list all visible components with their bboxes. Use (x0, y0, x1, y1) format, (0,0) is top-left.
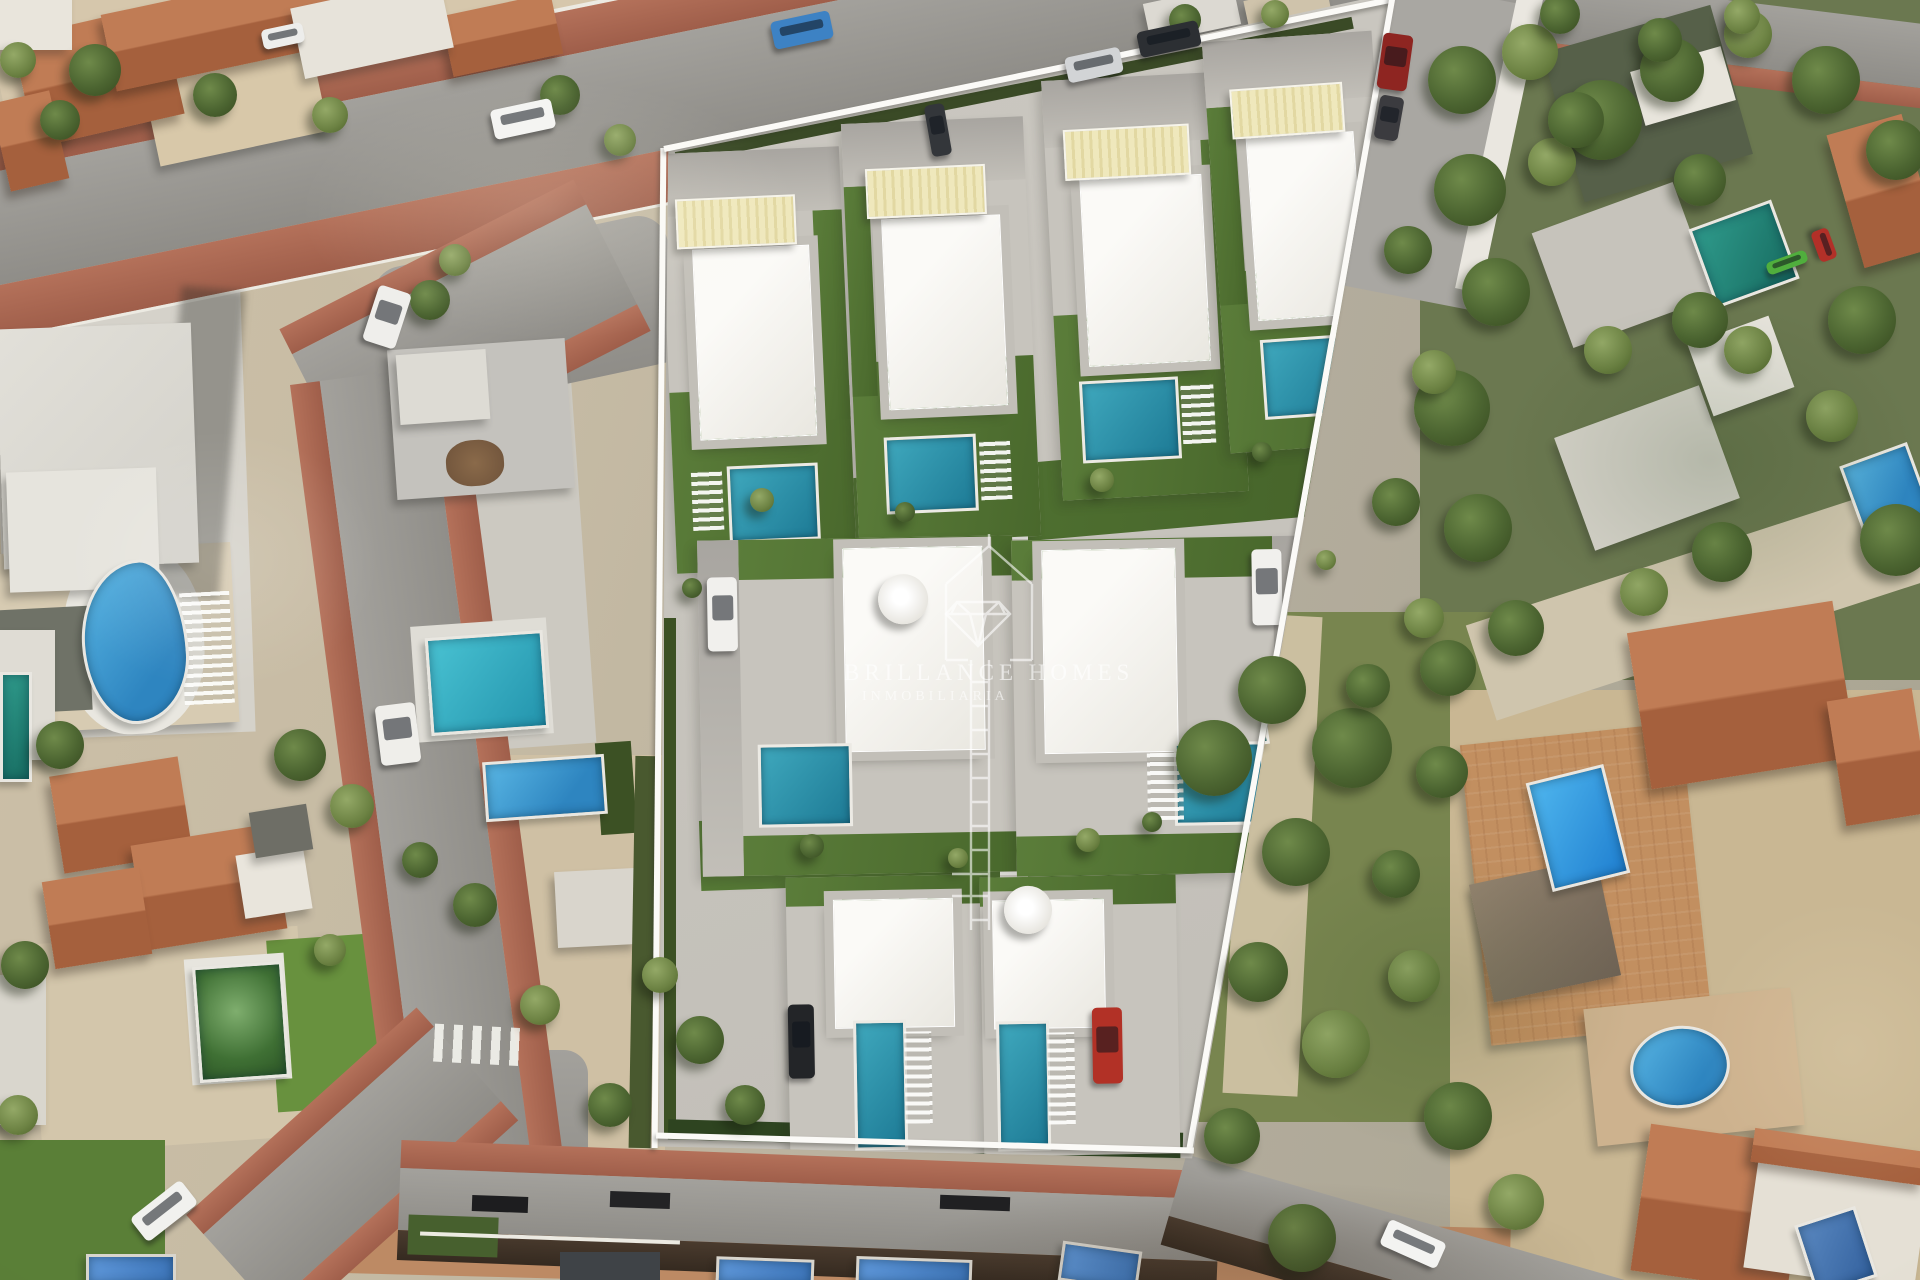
tree (1488, 1174, 1544, 1230)
tree (314, 934, 346, 966)
tree (1434, 154, 1506, 226)
villa-sun-loungers (979, 441, 1012, 501)
villa-pool (1079, 377, 1182, 464)
tree (750, 488, 774, 512)
tree (1261, 0, 1289, 28)
car-windshield (792, 1022, 811, 1047)
house-roof-white-box (396, 349, 491, 425)
shed-white-gravel (554, 868, 638, 948)
tree (1238, 656, 1306, 724)
car-windshield (1073, 54, 1114, 71)
house-roof-terracotta-large (1627, 601, 1857, 790)
tree (0, 42, 36, 78)
tree (1302, 1010, 1370, 1078)
bin-dark (610, 1191, 671, 1209)
tree (1268, 1204, 1336, 1272)
tree (1548, 92, 1604, 148)
tree (1, 941, 49, 989)
tree (642, 957, 678, 993)
car-windshield (779, 18, 823, 36)
tree (1462, 258, 1530, 326)
car-windshield (1384, 46, 1408, 68)
tree (1412, 350, 1456, 394)
car-windshield (712, 595, 734, 621)
villa-house (881, 214, 1008, 410)
tree (1076, 828, 1100, 852)
villa-sun-loungers (1047, 1032, 1076, 1125)
tree (1262, 818, 1330, 886)
tree (520, 985, 560, 1025)
tree (1388, 950, 1440, 1002)
tree (1372, 850, 1420, 898)
villa (980, 874, 1181, 1165)
parasol-icon (1003, 885, 1052, 934)
tree (948, 848, 968, 868)
tree (1228, 942, 1288, 1002)
tree (439, 244, 471, 276)
tree (1620, 568, 1668, 616)
tree (1176, 720, 1252, 796)
tree (1866, 120, 1920, 180)
tree (604, 124, 636, 156)
van-white-branch (374, 702, 421, 766)
car-windshield (267, 28, 298, 41)
tree (402, 842, 438, 878)
villa-pool (757, 743, 853, 828)
crosswalk (433, 1024, 529, 1067)
villa-house (692, 244, 817, 440)
tree (676, 1016, 724, 1064)
tree (1346, 664, 1390, 708)
tree (682, 578, 702, 598)
tree (1316, 550, 1336, 570)
villa-pool (996, 1021, 1051, 1152)
tree (410, 280, 450, 320)
tree (1416, 746, 1468, 798)
villa-pergola (675, 194, 796, 249)
tree (1724, 326, 1772, 374)
house-roof-white (235, 845, 312, 919)
tree (1252, 442, 1272, 462)
tree (1672, 292, 1728, 348)
aerial-photo-canvas: BRILLANCE HOMES INMOBILIARIA (0, 0, 1920, 1280)
tree (69, 44, 121, 96)
shed-dark (249, 804, 313, 859)
tree (1372, 478, 1420, 526)
car-windshield (382, 717, 413, 741)
tree (1584, 326, 1632, 374)
tree (1638, 18, 1682, 62)
tree (1142, 812, 1162, 832)
tree (725, 1085, 765, 1125)
villa-lawn (743, 831, 1018, 876)
tree (453, 883, 497, 927)
villa (697, 535, 1018, 876)
bin-dark (940, 1195, 1010, 1211)
car-windshield (1256, 568, 1278, 594)
pool-tarp-bottom-1 (86, 1254, 176, 1280)
villa (786, 874, 987, 1165)
hedge-left-wall (664, 618, 676, 1138)
pool-green-southwest (192, 961, 290, 1083)
villa-pergola (1229, 82, 1345, 139)
villa-pool (853, 1020, 908, 1151)
tree (1502, 24, 1558, 80)
tree (1806, 390, 1858, 442)
tree (1674, 154, 1726, 206)
villa-sun-loungers (691, 471, 724, 531)
car-windshield (1819, 233, 1833, 257)
car-parked (1092, 1008, 1123, 1085)
tree (312, 97, 348, 133)
villa-pergola (1062, 124, 1191, 181)
tree (274, 729, 326, 781)
villa-pool (1260, 334, 1353, 420)
pool-tarp-bottom-3 (856, 1256, 973, 1280)
tree (1424, 1082, 1492, 1150)
tree (800, 834, 824, 858)
pool-blue-west (482, 754, 608, 822)
tree (1312, 708, 1392, 788)
pool-teal-left-edge (0, 672, 32, 782)
tree (1488, 600, 1544, 656)
car-windshield (1146, 28, 1191, 46)
tree (895, 502, 915, 522)
pool-cyan-west (425, 630, 550, 736)
villa-house (833, 898, 955, 1029)
tree (1792, 46, 1860, 114)
tree (1444, 494, 1512, 562)
tree (1090, 468, 1114, 492)
tree (193, 73, 237, 117)
villa-pergola (865, 164, 988, 219)
car-windshield (1380, 105, 1400, 123)
tree (0, 1095, 38, 1135)
villa-sun-loungers (904, 1031, 933, 1124)
tree (1420, 640, 1476, 696)
car-parked (1251, 549, 1282, 626)
tree (330, 784, 374, 828)
villa-house (1041, 548, 1179, 754)
tree (1428, 46, 1496, 114)
bin-dark (472, 1195, 529, 1213)
tree (1828, 286, 1896, 354)
house-roof-terracotta (42, 867, 153, 969)
villa-pool (884, 434, 979, 515)
pool-tarp-bottom-2 (716, 1256, 815, 1280)
tree (588, 1083, 632, 1127)
car-parked (707, 577, 738, 652)
villa-house (1080, 174, 1211, 367)
car-windshield (929, 115, 946, 135)
tree (40, 100, 80, 140)
car-windshield (374, 299, 403, 325)
car-windshield (500, 107, 546, 126)
parasol-icon (877, 574, 928, 625)
tree (1384, 226, 1432, 274)
villa-sun-loungers (1180, 383, 1217, 443)
car-parked (788, 1004, 815, 1078)
shed-dark-south (560, 1252, 660, 1280)
tree (36, 721, 84, 769)
tree (1204, 1108, 1260, 1164)
tree (1404, 598, 1444, 638)
tree (1692, 522, 1752, 582)
villa (841, 116, 1041, 544)
car-windshield (1096, 1026, 1118, 1052)
